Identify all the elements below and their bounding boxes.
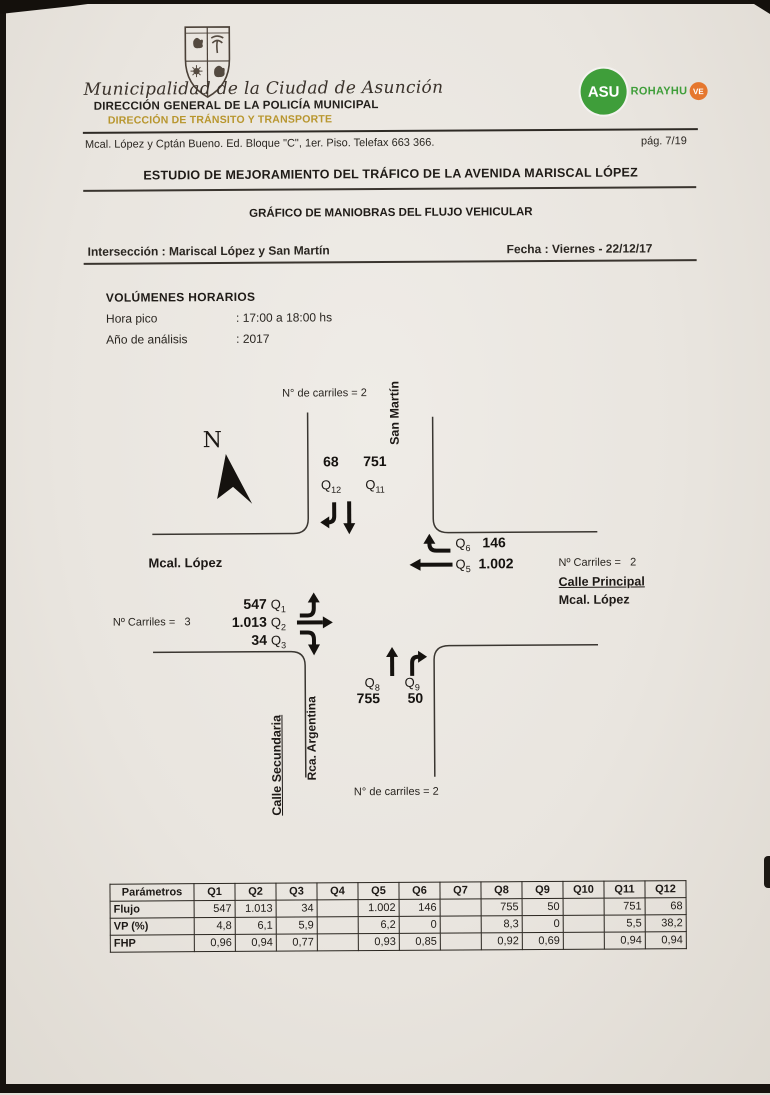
flow-value-q2: 1.013: [223, 614, 267, 630]
table-cell: 0,92: [481, 933, 522, 950]
table-cell: 0,96: [194, 934, 235, 951]
scan-edge-bottom: [0, 1084, 770, 1093]
table-cell: 34: [276, 900, 317, 917]
street-left: Mcal. López: [148, 555, 222, 570]
table-cell: [563, 932, 604, 949]
flow-value-q12: 68: [314, 453, 348, 469]
analysis-year-value: : 2017: [236, 332, 269, 346]
road-lines: [0, 373, 770, 828]
table-header-cell: Q3: [276, 883, 317, 900]
table-row: FHP0,960,940,770,930,850,920,690,940,94: [110, 932, 686, 953]
table-cell: 1.002: [358, 899, 399, 916]
table-header-cell: Q1: [194, 883, 235, 900]
date-label: Fecha : Viernes - 22/12/17: [507, 241, 653, 256]
q12-turn-left-arrow-icon: [320, 501, 360, 535]
q3-turn-down-arrow-icon: [299, 627, 325, 657]
flow-value-q11: 751: [355, 453, 395, 469]
table-cell: 8,3: [481, 916, 522, 933]
table-header-cell: Q11: [604, 881, 645, 898]
table-cell: 0,77: [276, 934, 317, 951]
table-cell: [317, 917, 358, 934]
intersection-label: Intersección : Mariscal López y San Mart…: [88, 243, 330, 258]
flow-label-q3: Q3: [271, 633, 286, 651]
table-header-cell: Q10: [563, 881, 604, 898]
table-cell: 755: [481, 899, 522, 916]
table-header-cell: Q5: [358, 882, 399, 899]
document-subtitle: GRÁFICO DE MANIOBRAS DEL FLUJO VEHICULAR: [83, 205, 698, 221]
table-cell: 68: [645, 898, 686, 915]
asu-logo-circle-icon: ASU: [580, 69, 626, 115]
table-cell: 0,94: [235, 934, 276, 951]
scan-edge-left: [0, 0, 6, 1093]
table-cell: 0: [399, 916, 440, 933]
flow-label-q6: Q6: [455, 535, 470, 553]
institution-name: Municipalidad de la Ciudad de Asunción: [84, 78, 444, 100]
street-san-martin: San Martín: [386, 381, 402, 445]
params-table-body: Flujo5471.013341.0021467555075168VP (%)4…: [110, 898, 686, 953]
table-cell: [563, 915, 604, 932]
table-header-cell: Q12: [645, 881, 686, 898]
table-cell: [317, 900, 358, 917]
ve-logo-circle-icon: VE: [689, 82, 707, 100]
table-cell: 751: [604, 898, 645, 915]
table-param-name: FHP: [110, 935, 194, 953]
scan-edge-top: [0, 0, 770, 4]
table-cell: 0,94: [604, 932, 645, 949]
table-param-name: Flujo: [110, 901, 194, 919]
flow-value-q6: 146: [482, 534, 505, 550]
flow-label-q12: Q12: [314, 477, 348, 495]
title-underline: [83, 186, 696, 191]
rohayhu-logo-text: ROHAYHU: [631, 85, 688, 97]
street-bottom-name: Rca. Argentina: [303, 696, 320, 780]
table-param-name: VP (%): [110, 918, 194, 936]
flow-value-q8: 755: [349, 690, 387, 706]
table-cell: 4,8: [194, 917, 235, 934]
flow-label-q2: Q2: [271, 615, 286, 633]
table-cell: [317, 934, 358, 951]
table-cell: 0,94: [645, 932, 686, 949]
direccion-general: DIRECCIÓN GENERAL DE LA POLICÍA MUNICIPA…: [94, 99, 379, 113]
table-header-cell: Parámetros: [110, 884, 194, 902]
page-number: pág. 7/19: [641, 135, 687, 147]
north-arrow-icon: [216, 454, 254, 506]
table-cell: 6,1: [235, 917, 276, 934]
table-header-cell: Q6: [399, 882, 440, 899]
street-right-name: Mcal. López: [559, 593, 630, 607]
header-divider: [83, 128, 698, 134]
lanes-bottom-label: N° de carriles = 2: [354, 786, 439, 799]
scan-edge-right-mark: [764, 856, 770, 888]
volumes-heading: VOLÚMENES HORARIOS: [106, 290, 256, 305]
lanes-top-label: N° de carriles = 2: [254, 387, 394, 400]
flow-value-q3: 34: [223, 632, 267, 648]
flow-value-q5: 1.002: [478, 555, 513, 571]
table-cell: 38,2: [645, 915, 686, 932]
table-header-cell: Q2: [235, 883, 276, 900]
peak-hour-label: Hora pico: [106, 311, 157, 325]
table-cell: 0,85: [399, 933, 440, 950]
table-cell: 547: [194, 900, 235, 917]
parameters-table: ParámetrosQ1Q2Q3Q4Q5Q6Q7Q8Q9Q10Q11Q12 Fl…: [109, 880, 686, 953]
flow-label-q11: Q11: [355, 477, 395, 495]
table-cell: 5,9: [276, 917, 317, 934]
asu-rohayhu-logo: ASU ROHAYHU VE: [580, 68, 707, 115]
intersection-underline: [84, 259, 697, 264]
table-cell: [440, 899, 481, 916]
table-cell: 50: [522, 898, 563, 915]
street-right-role: Calle Principal: [559, 574, 645, 589]
direccion-transito: DIRECCIÓN DE TRÁNSITO Y TRANSPORTE: [108, 113, 332, 126]
table-cell: 5,5: [604, 915, 645, 932]
table-cell: [440, 933, 481, 950]
flow-label-q5: Q5: [455, 556, 470, 574]
address-line: Mcal. López y Cptán Bueno. Ed. Bloque "C…: [85, 137, 435, 151]
scanned-page: Municipalidad de la Ciudad de Asunción D…: [0, 0, 770, 1093]
flow-label-q1: Q1: [271, 597, 286, 615]
page-content: Municipalidad de la Ciudad de Asunción D…: [0, 0, 770, 1095]
table-cell: 6,2: [358, 916, 399, 933]
analysis-year-label: Año de análisis: [106, 332, 187, 346]
lanes-right-label: Nº Carriles = 2: [558, 556, 636, 568]
table-cell: 1.013: [235, 900, 276, 917]
document-title: ESTUDIO DE MEJORAMIENTO DEL TRÁFICO DE L…: [83, 165, 698, 183]
q6-q5-arrows-icon: [408, 534, 454, 574]
intersection-diagram: N° de carriles = 2 San Martín N 68 751 Q…: [0, 373, 770, 828]
table-header-cell: Q9: [522, 881, 563, 898]
peak-hour-value: : 17:00 a 18:00 hs: [236, 310, 332, 325]
table-cell: [440, 916, 481, 933]
table-cell: 0,69: [522, 932, 563, 949]
table-cell: [563, 898, 604, 915]
table-header-cell: Q4: [317, 883, 358, 900]
table-header-cell: Q7: [440, 882, 481, 899]
flow-value-q9: 50: [398, 690, 432, 706]
street-bottom-role: Calle Secundaria: [268, 715, 285, 816]
table-cell: 0: [522, 915, 563, 932]
table-header-cell: Q8: [481, 882, 522, 899]
flow-value-q1: 547: [223, 596, 267, 612]
north-letter: N: [203, 428, 222, 453]
table-cell: 146: [399, 899, 440, 916]
q8-q9-arrows-icon: [384, 646, 428, 678]
lanes-left-label: Nº Carriles = 3: [113, 616, 191, 628]
table-cell: 0,93: [358, 933, 399, 950]
